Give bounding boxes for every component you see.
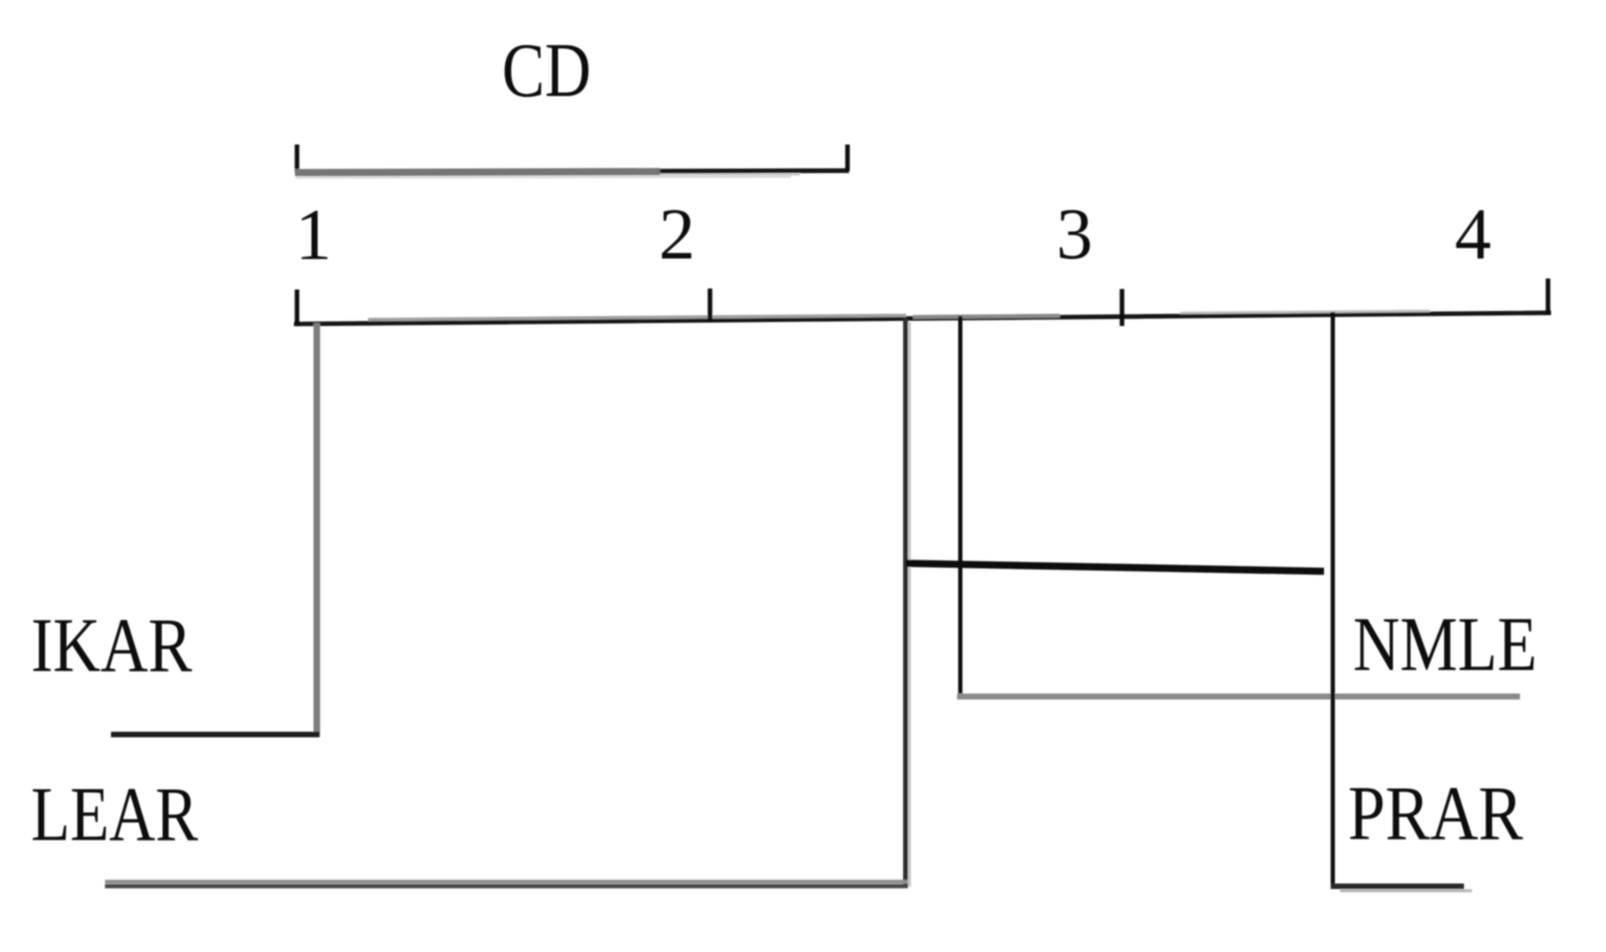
svg-text:1: 1	[295, 194, 332, 275]
svg-text:3: 3	[1056, 194, 1093, 275]
svg-text:NMLE: NMLE	[1353, 601, 1537, 687]
svg-text:CD: CD	[502, 27, 591, 113]
svg-text:PRAR: PRAR	[1348, 770, 1524, 856]
svg-text:2: 2	[659, 194, 696, 275]
svg-text:IKAR: IKAR	[31, 602, 193, 688]
svg-text:4: 4	[1455, 194, 1492, 275]
svg-text:LEAR: LEAR	[31, 771, 199, 857]
